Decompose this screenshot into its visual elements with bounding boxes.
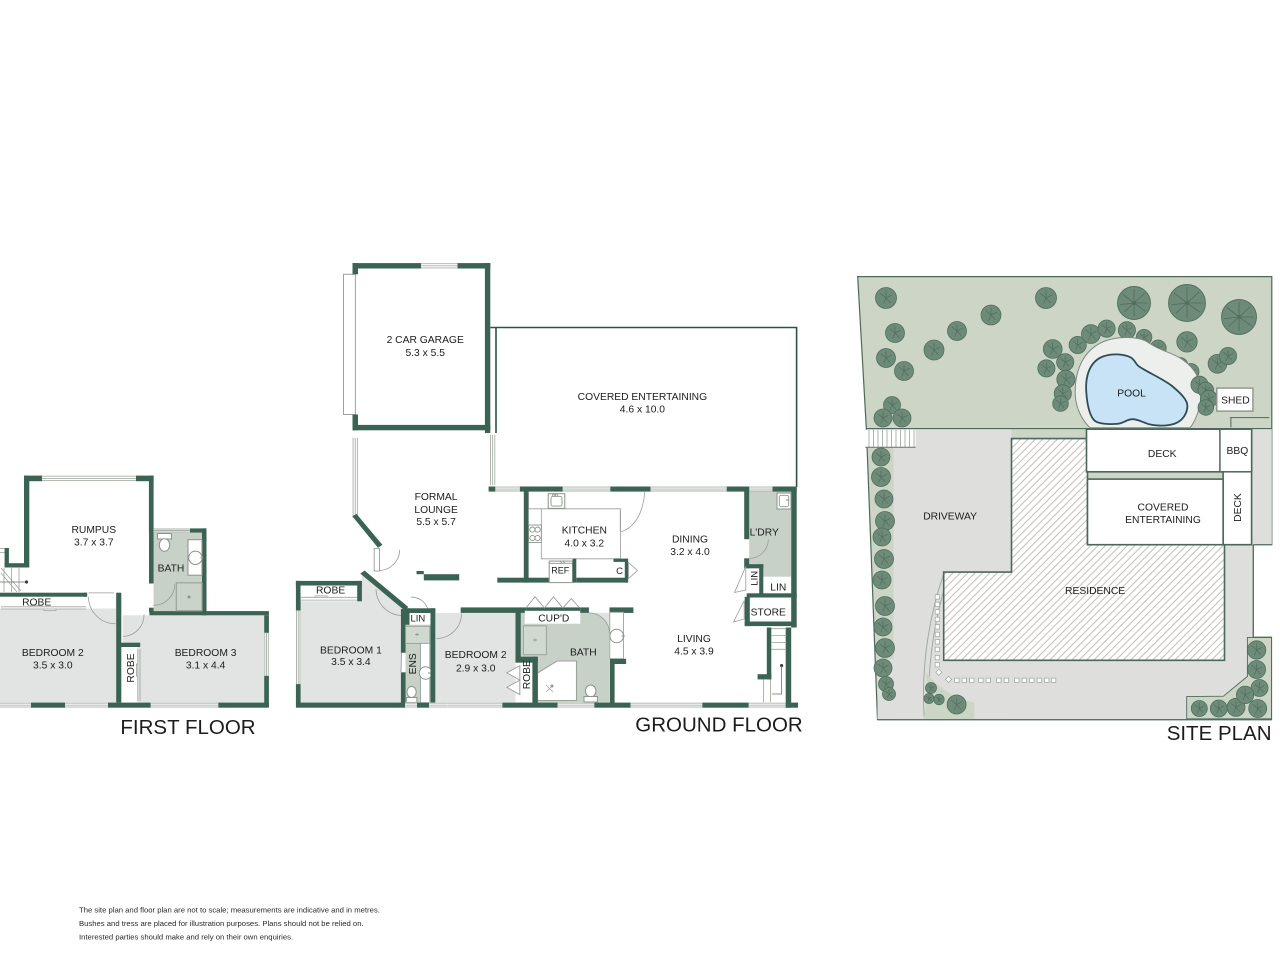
svg-text:DECK: DECK bbox=[1233, 493, 1244, 522]
svg-text:KITCHEN: KITCHEN bbox=[562, 526, 607, 537]
svg-text:2 CAR GARAGE: 2 CAR GARAGE bbox=[387, 335, 464, 346]
svg-text:LIN: LIN bbox=[770, 583, 786, 594]
svg-text:3.5 x 3.4: 3.5 x 3.4 bbox=[331, 657, 371, 668]
svg-text:RESIDENCE: RESIDENCE bbox=[1065, 586, 1125, 597]
svg-text:BATH: BATH bbox=[158, 564, 185, 575]
svg-text:DECK: DECK bbox=[1148, 449, 1177, 460]
svg-text:FIRST FLOOR: FIRST FLOOR bbox=[120, 716, 255, 739]
svg-text:ENS: ENS bbox=[408, 653, 419, 674]
svg-text:3.7 x 3.7: 3.7 x 3.7 bbox=[74, 538, 114, 549]
svg-text:DRIVEWAY: DRIVEWAY bbox=[923, 512, 977, 523]
svg-text:5.5 x 5.7: 5.5 x 5.7 bbox=[416, 517, 456, 528]
svg-text:SITE PLAN: SITE PLAN bbox=[1167, 722, 1272, 745]
svg-text:BEDROOM 2: BEDROOM 2 bbox=[22, 648, 84, 659]
svg-text:ENTERTAINING: ENTERTAINING bbox=[1125, 515, 1201, 526]
svg-text:ROBE: ROBE bbox=[126, 653, 137, 682]
svg-text:4.5 x 3.9: 4.5 x 3.9 bbox=[674, 646, 714, 657]
svg-text:DINING: DINING bbox=[672, 535, 708, 546]
svg-text:Bushes and tress are placed fo: Bushes and tress are placed for illustra… bbox=[79, 919, 364, 928]
svg-text:Interested parties should make: Interested parties should make and rely … bbox=[79, 933, 293, 942]
svg-text:ROBE: ROBE bbox=[522, 660, 533, 689]
svg-text:BEDROOM 1: BEDROOM 1 bbox=[320, 646, 382, 657]
svg-text:LIN: LIN bbox=[411, 614, 426, 625]
svg-text:L'DRY: L'DRY bbox=[750, 527, 779, 538]
svg-text:RUMPUS: RUMPUS bbox=[71, 525, 116, 536]
svg-text:5.3 x 5.5: 5.3 x 5.5 bbox=[405, 348, 445, 359]
svg-text:GROUND FLOOR: GROUND FLOOR bbox=[635, 714, 802, 737]
svg-text:POOL: POOL bbox=[1117, 388, 1146, 399]
svg-text:BATH: BATH bbox=[570, 647, 597, 658]
svg-text:LOUNGE: LOUNGE bbox=[414, 505, 458, 516]
svg-text:ROBE: ROBE bbox=[316, 586, 345, 597]
svg-text:2.9 x 3.0: 2.9 x 3.0 bbox=[456, 664, 496, 675]
svg-text:STORE: STORE bbox=[751, 607, 786, 618]
svg-text:3.2 x 4.0: 3.2 x 4.0 bbox=[670, 547, 710, 558]
svg-text:CUP'D: CUP'D bbox=[538, 613, 569, 624]
svg-text:COVERED: COVERED bbox=[1138, 502, 1189, 513]
svg-text:4.0 x 3.2: 4.0 x 3.2 bbox=[565, 538, 605, 549]
svg-text:COVERED ENTERTAINING: COVERED ENTERTAINING bbox=[578, 392, 708, 403]
svg-text:BEDROOM 3: BEDROOM 3 bbox=[175, 648, 237, 659]
svg-text:BBQ: BBQ bbox=[1227, 446, 1249, 457]
svg-text:4.6 x 10.0: 4.6 x 10.0 bbox=[620, 405, 665, 416]
svg-text:LIVING: LIVING bbox=[677, 634, 711, 645]
svg-text:FORMAL: FORMAL bbox=[415, 492, 458, 503]
svg-text:3.5 x 3.0: 3.5 x 3.0 bbox=[33, 661, 73, 672]
svg-text:SHED: SHED bbox=[1221, 396, 1250, 407]
svg-text:BEDROOM 2: BEDROOM 2 bbox=[445, 650, 507, 661]
svg-text:The site plan and floor plan a: The site plan and floor plan are not to … bbox=[79, 906, 380, 915]
svg-text:ROBE: ROBE bbox=[22, 598, 51, 609]
svg-text:LIN: LIN bbox=[750, 571, 761, 586]
svg-text:3.1 x 4.4: 3.1 x 4.4 bbox=[186, 661, 226, 672]
svg-text:C: C bbox=[616, 566, 623, 577]
svg-text:REF: REF bbox=[551, 566, 570, 576]
